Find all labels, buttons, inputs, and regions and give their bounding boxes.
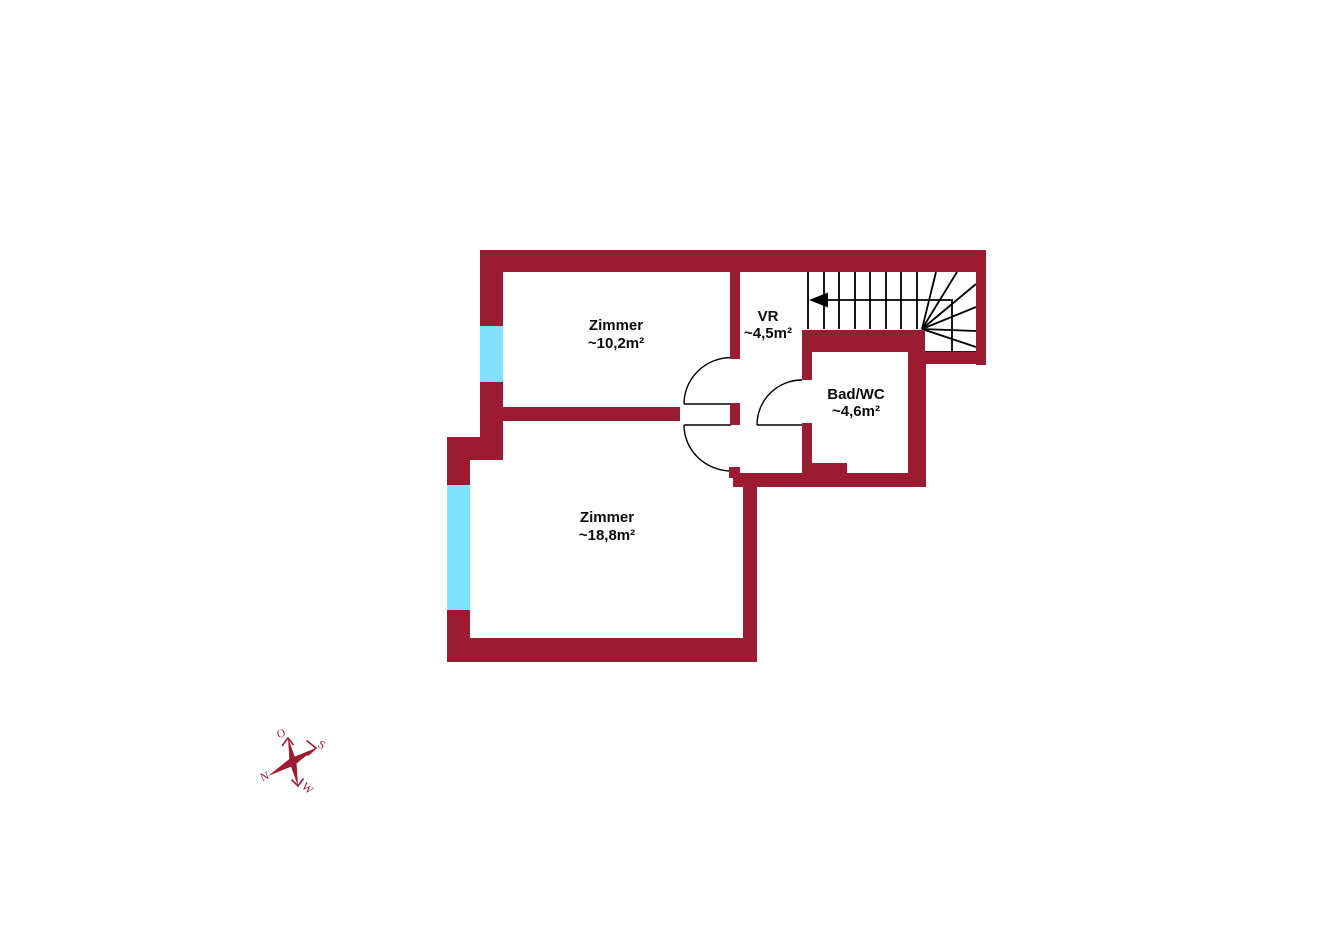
window-upper-zimmer (480, 326, 503, 382)
wall-lower-right (743, 473, 757, 662)
room-label-bad-wc: Bad/WC (827, 386, 885, 403)
floor-plan-drawing: Zimmer ~10,2m² VR ~4,5m² Bad/WC ~4,6m² Z… (0, 0, 1333, 943)
wall-badwc-top (802, 330, 925, 352)
wall-vr-left (730, 272, 740, 359)
floor-plan-page: Zimmer ~10,2m² VR ~4,5m² Bad/WC ~4,6m² Z… (0, 0, 1333, 943)
room-label-lower-zimmer: Zimmer (580, 509, 634, 526)
door-upper-zimmer (684, 358, 732, 405)
room-area-vr: ~4,5m² (744, 325, 792, 342)
wall-badwc-right (908, 352, 926, 487)
wall-top (480, 250, 986, 272)
walls (447, 250, 986, 662)
stair-winder-fan (922, 272, 976, 352)
door-lower-zimmer (684, 425, 732, 471)
compass-letter-south: S (316, 739, 327, 753)
wall-vr-bottom (733, 473, 926, 487)
wall-door-post-mid (730, 403, 740, 425)
window-lower-zimmer (447, 485, 470, 610)
compass-letter-east: O (276, 727, 287, 741)
wall-badwc-left-lower (802, 423, 812, 463)
wall-outer-right (976, 250, 986, 365)
compass-star-icon (268, 738, 316, 786)
wall-left-jog (447, 437, 503, 460)
compass-letter-north: N (259, 770, 272, 784)
room-area-lower-zimmer: ~18,8m² (579, 527, 635, 544)
compass-rose: O S N W (259, 727, 327, 797)
compass-letter-west: W (299, 781, 315, 797)
room-area-bad-wc: ~4,6m² (832, 403, 880, 420)
room-label-vr: VR (758, 308, 779, 325)
stair-direction-arrow-icon (809, 293, 828, 308)
door-bad-wc (757, 380, 802, 425)
room-area-upper-zimmer: ~10,2m² (588, 335, 644, 352)
room-label-upper-zimmer: Zimmer (589, 317, 643, 334)
wall-badwc-left-upper (802, 352, 812, 380)
doors (684, 358, 802, 472)
wall-room-divider (503, 407, 680, 421)
wall-bottom (447, 638, 757, 662)
wall-badwc-notch (802, 463, 847, 473)
